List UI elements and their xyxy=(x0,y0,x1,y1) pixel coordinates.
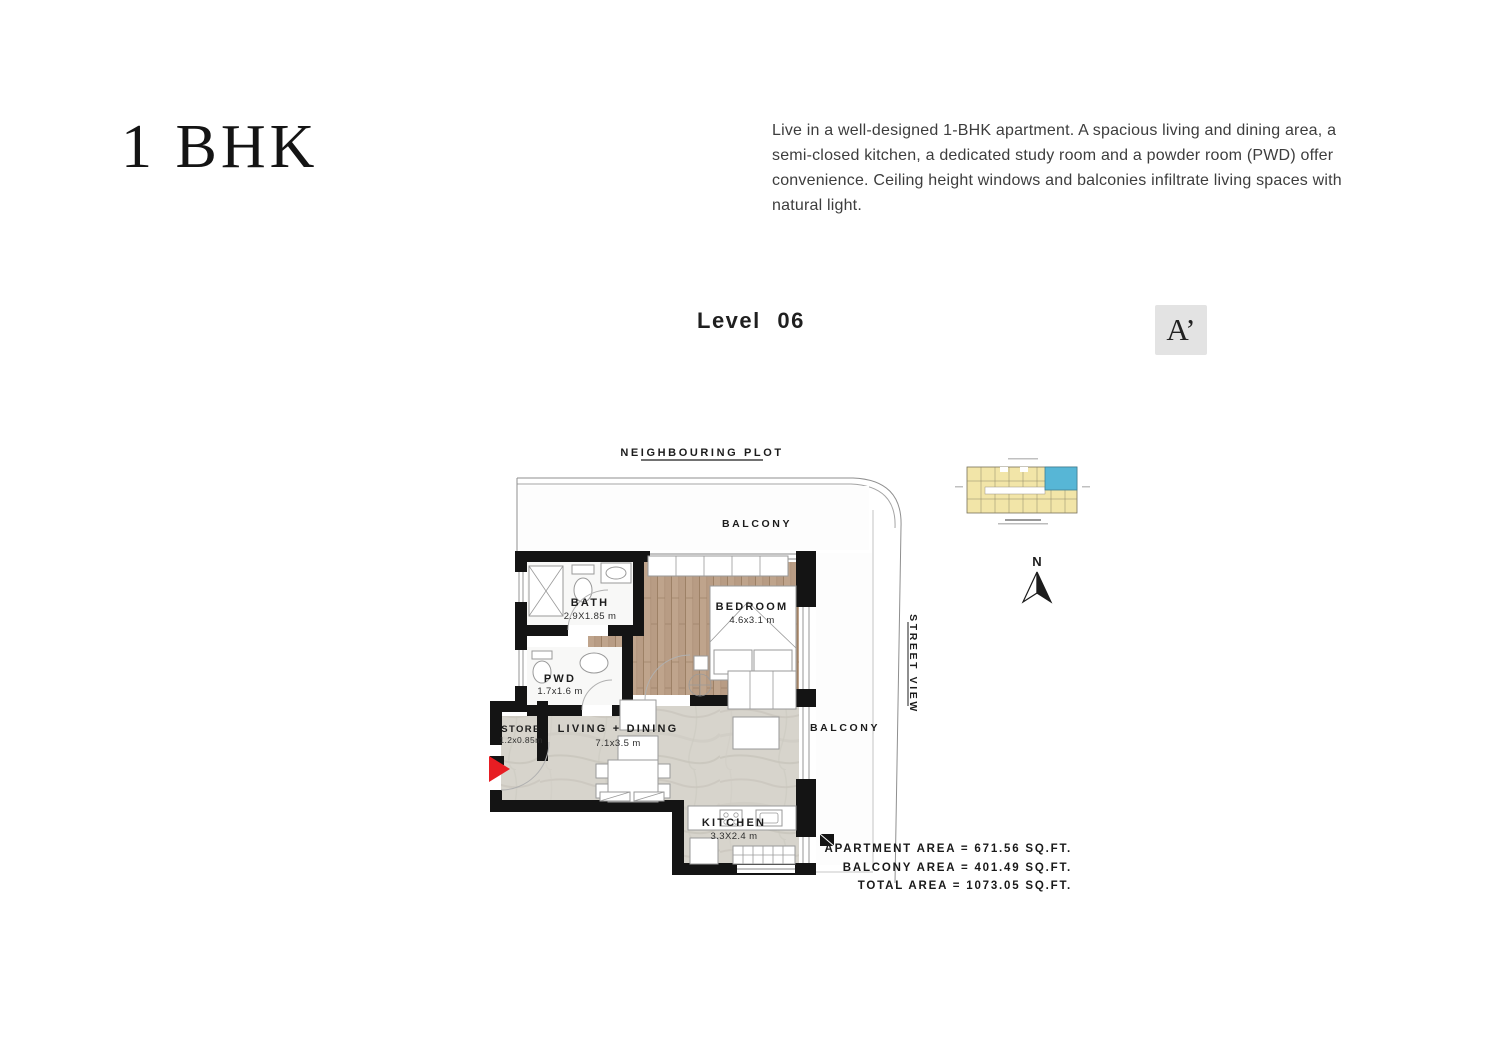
room-label-bedroom: BEDROOM xyxy=(716,601,789,613)
sofa xyxy=(728,671,796,709)
key-plan-highlighted-unit xyxy=(1045,467,1077,490)
room-dims-store: 1.2x0.85m xyxy=(499,735,542,745)
north-arrow-icon: N xyxy=(1023,554,1051,602)
north-label: N xyxy=(1032,554,1041,569)
room-label-living-dining: LIVING + DINING xyxy=(558,723,679,735)
room-dims-bath: 2.9X1.85 m xyxy=(564,611,617,622)
neighbouring-plot-label: NEIGHBOURING PLOT xyxy=(620,447,783,459)
room-label-bath: BATH xyxy=(571,597,610,609)
street-view-label: STREET VIEW xyxy=(907,614,919,714)
balcony-area-text: BALCONY AREA = 401.49 SQ.FT. xyxy=(760,859,1072,878)
room-dims-living-dining: 7.1x3.5 m xyxy=(595,738,640,749)
room-dims-pwd: 1.7x1.6 m xyxy=(537,686,582,697)
coffee-table xyxy=(733,717,779,749)
balcony-right-label: BALCONY xyxy=(810,722,880,734)
key-plan xyxy=(955,458,1090,525)
room-dims-kitchen: 3.3X2.4 m xyxy=(711,831,758,842)
floor-plan-page: 1 BHK Live in a well-designed 1-BHK apar… xyxy=(0,0,1500,1061)
balcony-right-floor xyxy=(816,553,872,865)
room-label-kitchen: KITCHEN xyxy=(702,817,766,829)
area-summary: APARTMENT AREA = 671.56 SQ.FT. BALCONY A… xyxy=(760,840,1072,896)
balcony-top-label: BALCONY xyxy=(722,518,792,530)
balcony-top-floor xyxy=(519,486,869,550)
floor-plan-drawing: NEIGHBOURING PLOT BALCONY BALCONY STREET… xyxy=(0,0,1500,1061)
room-label-pwd: PWD xyxy=(544,673,576,685)
room-label-store: STORE xyxy=(501,724,541,735)
total-area-text: TOTAL AREA = 1073.05 SQ.FT. xyxy=(760,877,1072,896)
apartment-area-text: APARTMENT AREA = 671.56 SQ.FT. xyxy=(760,840,1072,859)
room-dims-bedroom: 4.6x3.1 m xyxy=(729,615,774,626)
